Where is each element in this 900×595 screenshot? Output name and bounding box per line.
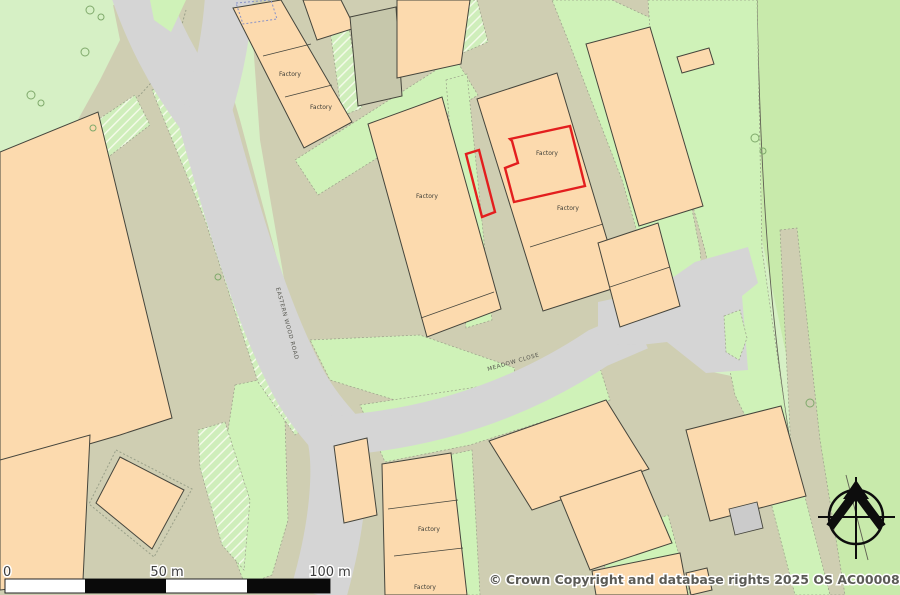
map-canvas[interactable]: Factory Factory Factory Factory Factory … <box>0 0 900 595</box>
road-main-east-branch <box>207 0 230 112</box>
scale-label-0: 0 <box>3 565 11 580</box>
factory-label-1: Factory <box>279 71 301 78</box>
scale-bar-seg-black-1 <box>85 579 166 593</box>
building-left-lower <box>0 435 90 590</box>
building-grey-warehouse <box>350 7 402 106</box>
copyright-text: © Crown Copyright and database rights 20… <box>489 572 900 587</box>
scale-label-100: 100 m <box>309 565 351 580</box>
factory-label-7: Factory <box>414 584 436 591</box>
factory-label-subject: Factory <box>536 150 558 157</box>
factory-label-2: Factory <box>310 104 332 111</box>
factory-label-3: Factory <box>416 193 438 200</box>
scale-label-50: 50 m <box>150 565 183 580</box>
scale-bar-seg-black-2 <box>247 579 330 593</box>
factory-label-5: Factory <box>557 205 579 212</box>
factory-label-6: Factory <box>418 526 440 533</box>
